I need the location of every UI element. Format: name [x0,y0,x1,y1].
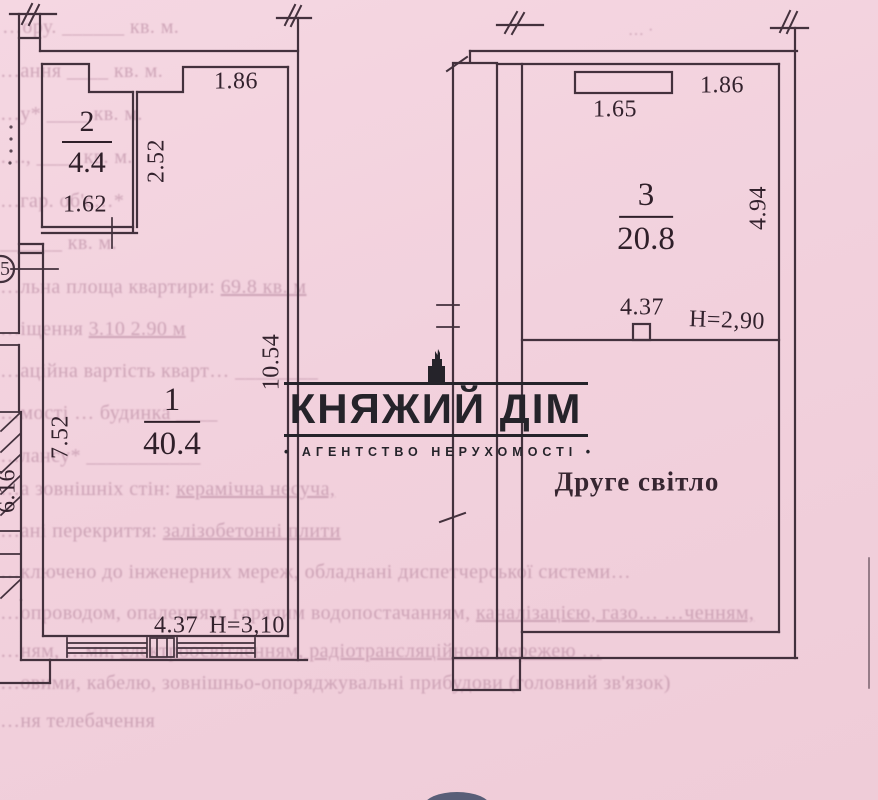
room-label-2: 2 4.4 [62,106,112,178]
dim-left-top-width: 1.86 [214,69,258,96]
watermark-subtitle: • АГЕНТСТВО НЕРУХОМОСТІ • [284,445,588,459]
room-number: 1 [143,383,201,418]
room-label-3: 3 20.8 [617,178,675,256]
callout-bubble-number: 5 [0,258,10,281]
dim-outer-left-height: 6.16 [0,469,22,513]
agency-watermark: КНЯЖИЙ ДІМ • АГЕНТСТВО НЕРУХОМОСТІ • [284,350,588,459]
dim-right-ceiling-height: H=2,90 [689,306,766,336]
second-light-annotation: Друге світло [555,467,720,498]
dim-right-height: 10.54 [259,334,286,391]
dim-shaft-width: 1.65 [593,97,637,124]
dim-left-bottom-width: 4.37 [154,613,198,640]
scanned-floor-plan-page: …ору. ______ кв. м. …ання ____ кв. м. …у… [0,0,878,800]
wall-notch [633,324,650,340]
room-label-1: 1 40.4 [143,383,201,461]
room-area: 4.4 [62,147,112,179]
dim-right-plan-height: 4.94 [746,186,773,230]
watermark-rule-bottom [284,434,588,437]
room-area: 20.8 [617,222,675,257]
room-number: 3 [617,178,675,213]
vent-shaft [575,72,672,93]
left-plan-windows [67,638,255,657]
dim-left-height: 7.52 [48,415,75,459]
room-area: 40.4 [143,427,201,462]
dim-right-top-width: 1.86 [700,73,744,100]
building-icon [284,350,588,382]
dim-room2-width: 1.62 [63,192,107,219]
fraction-bar [144,421,200,423]
room-number: 2 [62,106,112,138]
dim-room2-depth: 2.52 [144,139,171,183]
fraction-bar [62,141,112,143]
fraction-bar [619,216,673,218]
dim-left-ceiling-height: H=3,10 [209,613,285,640]
watermark-title: КНЯЖИЙ ДІМ [284,386,588,432]
dim-mid-width: 4.37 [620,295,664,322]
